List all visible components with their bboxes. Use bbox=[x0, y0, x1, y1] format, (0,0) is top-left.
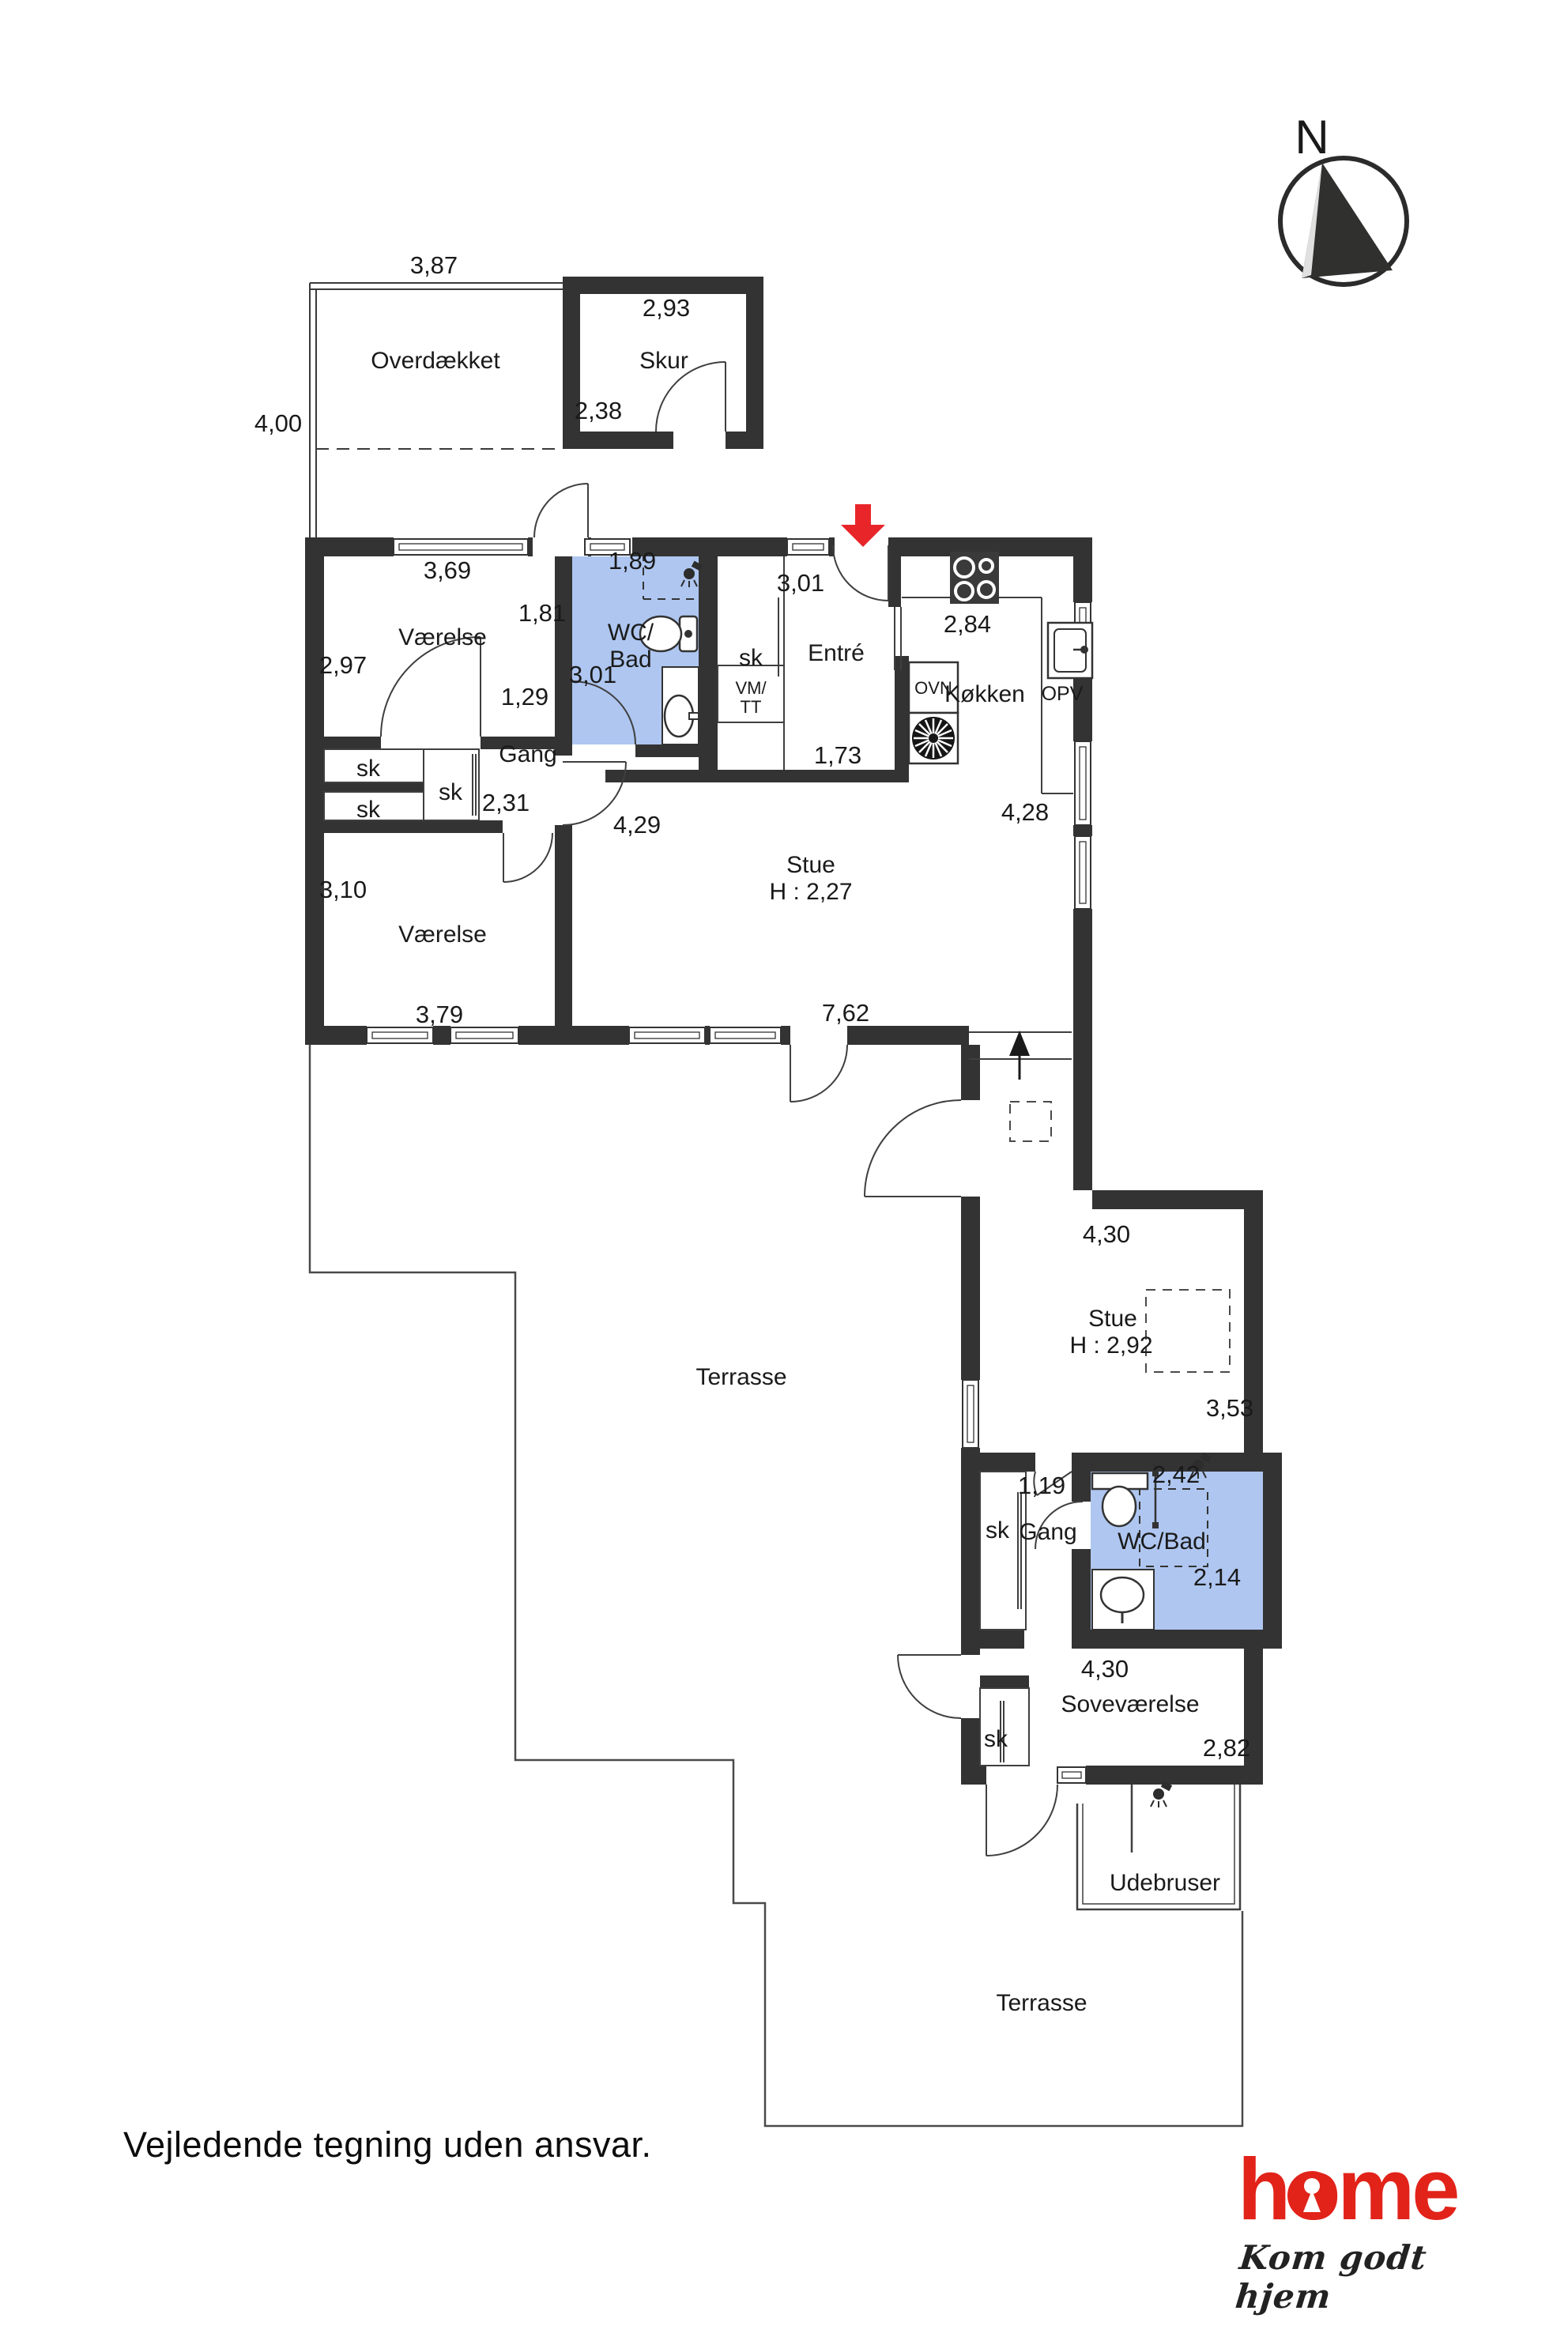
closet-label-6: sk bbox=[984, 1726, 1008, 1752]
dishwasher-label: OPV bbox=[1042, 683, 1084, 705]
step-arrow-icon bbox=[969, 1031, 1072, 1080]
room-label-skur: Skur bbox=[639, 348, 688, 374]
dim-overdaekket-width: 3,87 bbox=[410, 251, 458, 279]
dim-gang2-width: 1,19 bbox=[1018, 1472, 1065, 1499]
closet-label-1: sk bbox=[356, 756, 381, 782]
sink-icon bbox=[662, 667, 699, 744]
disclaimer-text: Vejledende tegning uden ansvar. bbox=[123, 2124, 652, 2165]
cooktop-icon bbox=[950, 552, 999, 604]
closet-label-5: sk bbox=[986, 1517, 1010, 1543]
dim-gang-2-31: 2,31 bbox=[482, 789, 530, 816]
room-label-terrasse-1: Terrasse bbox=[695, 1364, 786, 1390]
kitchen-fittings bbox=[895, 552, 1092, 793]
dim-vaerelse1-depth: 2,97 bbox=[319, 651, 367, 679]
room-label-udebruser: Udebruser bbox=[1110, 1870, 1220, 1896]
home-logo: home Kom godt hjem bbox=[1238, 2147, 1498, 2316]
room-label-wcbad1-line1: WC/ bbox=[608, 620, 654, 646]
dim-wcbad2-width2: 4,30 bbox=[1081, 1655, 1129, 1683]
home-logo-tagline: Kom godt hjem bbox=[1234, 2238, 1502, 2316]
floorplan-page: { "colors": { "wall": "#333333", "bath_f… bbox=[0, 0, 1568, 2352]
dim-skur-width: 2,93 bbox=[643, 294, 690, 322]
dim-skur-depth: 2,38 bbox=[575, 397, 622, 424]
dim-wcbad2-width: 2,42 bbox=[1152, 1461, 1200, 1488]
dim-entre-width: 1,73 bbox=[814, 741, 861, 769]
entrance-arrow-icon bbox=[841, 504, 885, 547]
room-label-vaerelse-1: Værelse bbox=[398, 624, 487, 650]
oven-label: OVN bbox=[914, 678, 952, 698]
closet-label-3: sk bbox=[439, 779, 463, 805]
vm-label: VM/ bbox=[735, 678, 767, 698]
closet-label-4: sk bbox=[739, 645, 763, 671]
ceiling-label-stue-1: H : 2,27 bbox=[769, 879, 852, 905]
room-label-stue-1: Stue bbox=[786, 852, 835, 878]
windows bbox=[367, 539, 1091, 1783]
dim-vaerelse1-width: 3,69 bbox=[424, 556, 471, 584]
overdaekket-area bbox=[310, 283, 563, 537]
room-label-wcbad2: WC/Bad bbox=[1118, 1528, 1206, 1555]
closets-annex bbox=[980, 1472, 1029, 1766]
dim-gang-1-81: 1,81 bbox=[518, 599, 566, 627]
dim-wcbad1-width: 1,89 bbox=[609, 547, 656, 575]
dim-koekken-width: 2,84 bbox=[944, 610, 991, 638]
dim-wcbad1-depth: 3,01 bbox=[569, 661, 616, 688]
outdoor-shower-icon bbox=[1151, 1781, 1172, 1807]
room-label-sovevaerelse: Soveværelse bbox=[1061, 1691, 1199, 1717]
extractor-fan-icon bbox=[912, 717, 955, 759]
dim-annexstue-width: 4,30 bbox=[1083, 1220, 1130, 1248]
home-logo-wordmark: home bbox=[1238, 2141, 1457, 2238]
kitchen-sink-icon bbox=[1048, 623, 1092, 678]
dim-koekken-counter: 4,28 bbox=[1001, 798, 1049, 826]
room-label-gang-1: Gang bbox=[499, 741, 556, 767]
dim-gang-1-29: 1,29 bbox=[501, 683, 548, 710]
floorplan-drawing: N 3,87 4,00 Overdækket 2,93 Skur 2,38 bbox=[0, 0, 1568, 2352]
compass-north-label: N bbox=[1295, 111, 1329, 164]
room-label-entre: Entré bbox=[808, 640, 865, 666]
room-label-stue-2: Stue bbox=[1088, 1306, 1137, 1332]
closet-label-2: sk bbox=[356, 797, 381, 823]
room-label-overdaekket: Overdækket bbox=[371, 348, 500, 374]
dim-gang-4-29: 4,29 bbox=[613, 811, 661, 839]
keyhole-icon bbox=[1287, 2171, 1336, 2220]
room-label-koekken: Køkken bbox=[944, 681, 1025, 707]
room-label-terrasse-2: Terrasse bbox=[996, 1990, 1087, 2016]
dim-wcbad2-depth: 2,14 bbox=[1193, 1563, 1241, 1591]
room-label-vaerelse-2: Værelse bbox=[398, 922, 487, 948]
dim-annexstue-depth: 3,53 bbox=[1206, 1394, 1253, 1422]
dim-entre-depth: 3,01 bbox=[777, 569, 824, 597]
tt-label: TT bbox=[741, 697, 762, 717]
ceiling-label-stue-2: H : 2,92 bbox=[1069, 1332, 1152, 1359]
room-label-gang-2: Gang bbox=[1019, 1519, 1076, 1545]
compass-icon: N bbox=[1280, 111, 1407, 285]
sink-icon bbox=[1092, 1570, 1154, 1630]
dim-vaerelse2-depth: 3,10 bbox=[319, 876, 367, 903]
dim-sovevaerelse: 2,82 bbox=[1203, 1734, 1250, 1762]
dim-overdaekket-depth: 4,00 bbox=[254, 409, 302, 437]
dim-vaerelse2-width: 3,79 bbox=[416, 1001, 463, 1028]
dim-stue1-width: 7,62 bbox=[822, 999, 869, 1027]
